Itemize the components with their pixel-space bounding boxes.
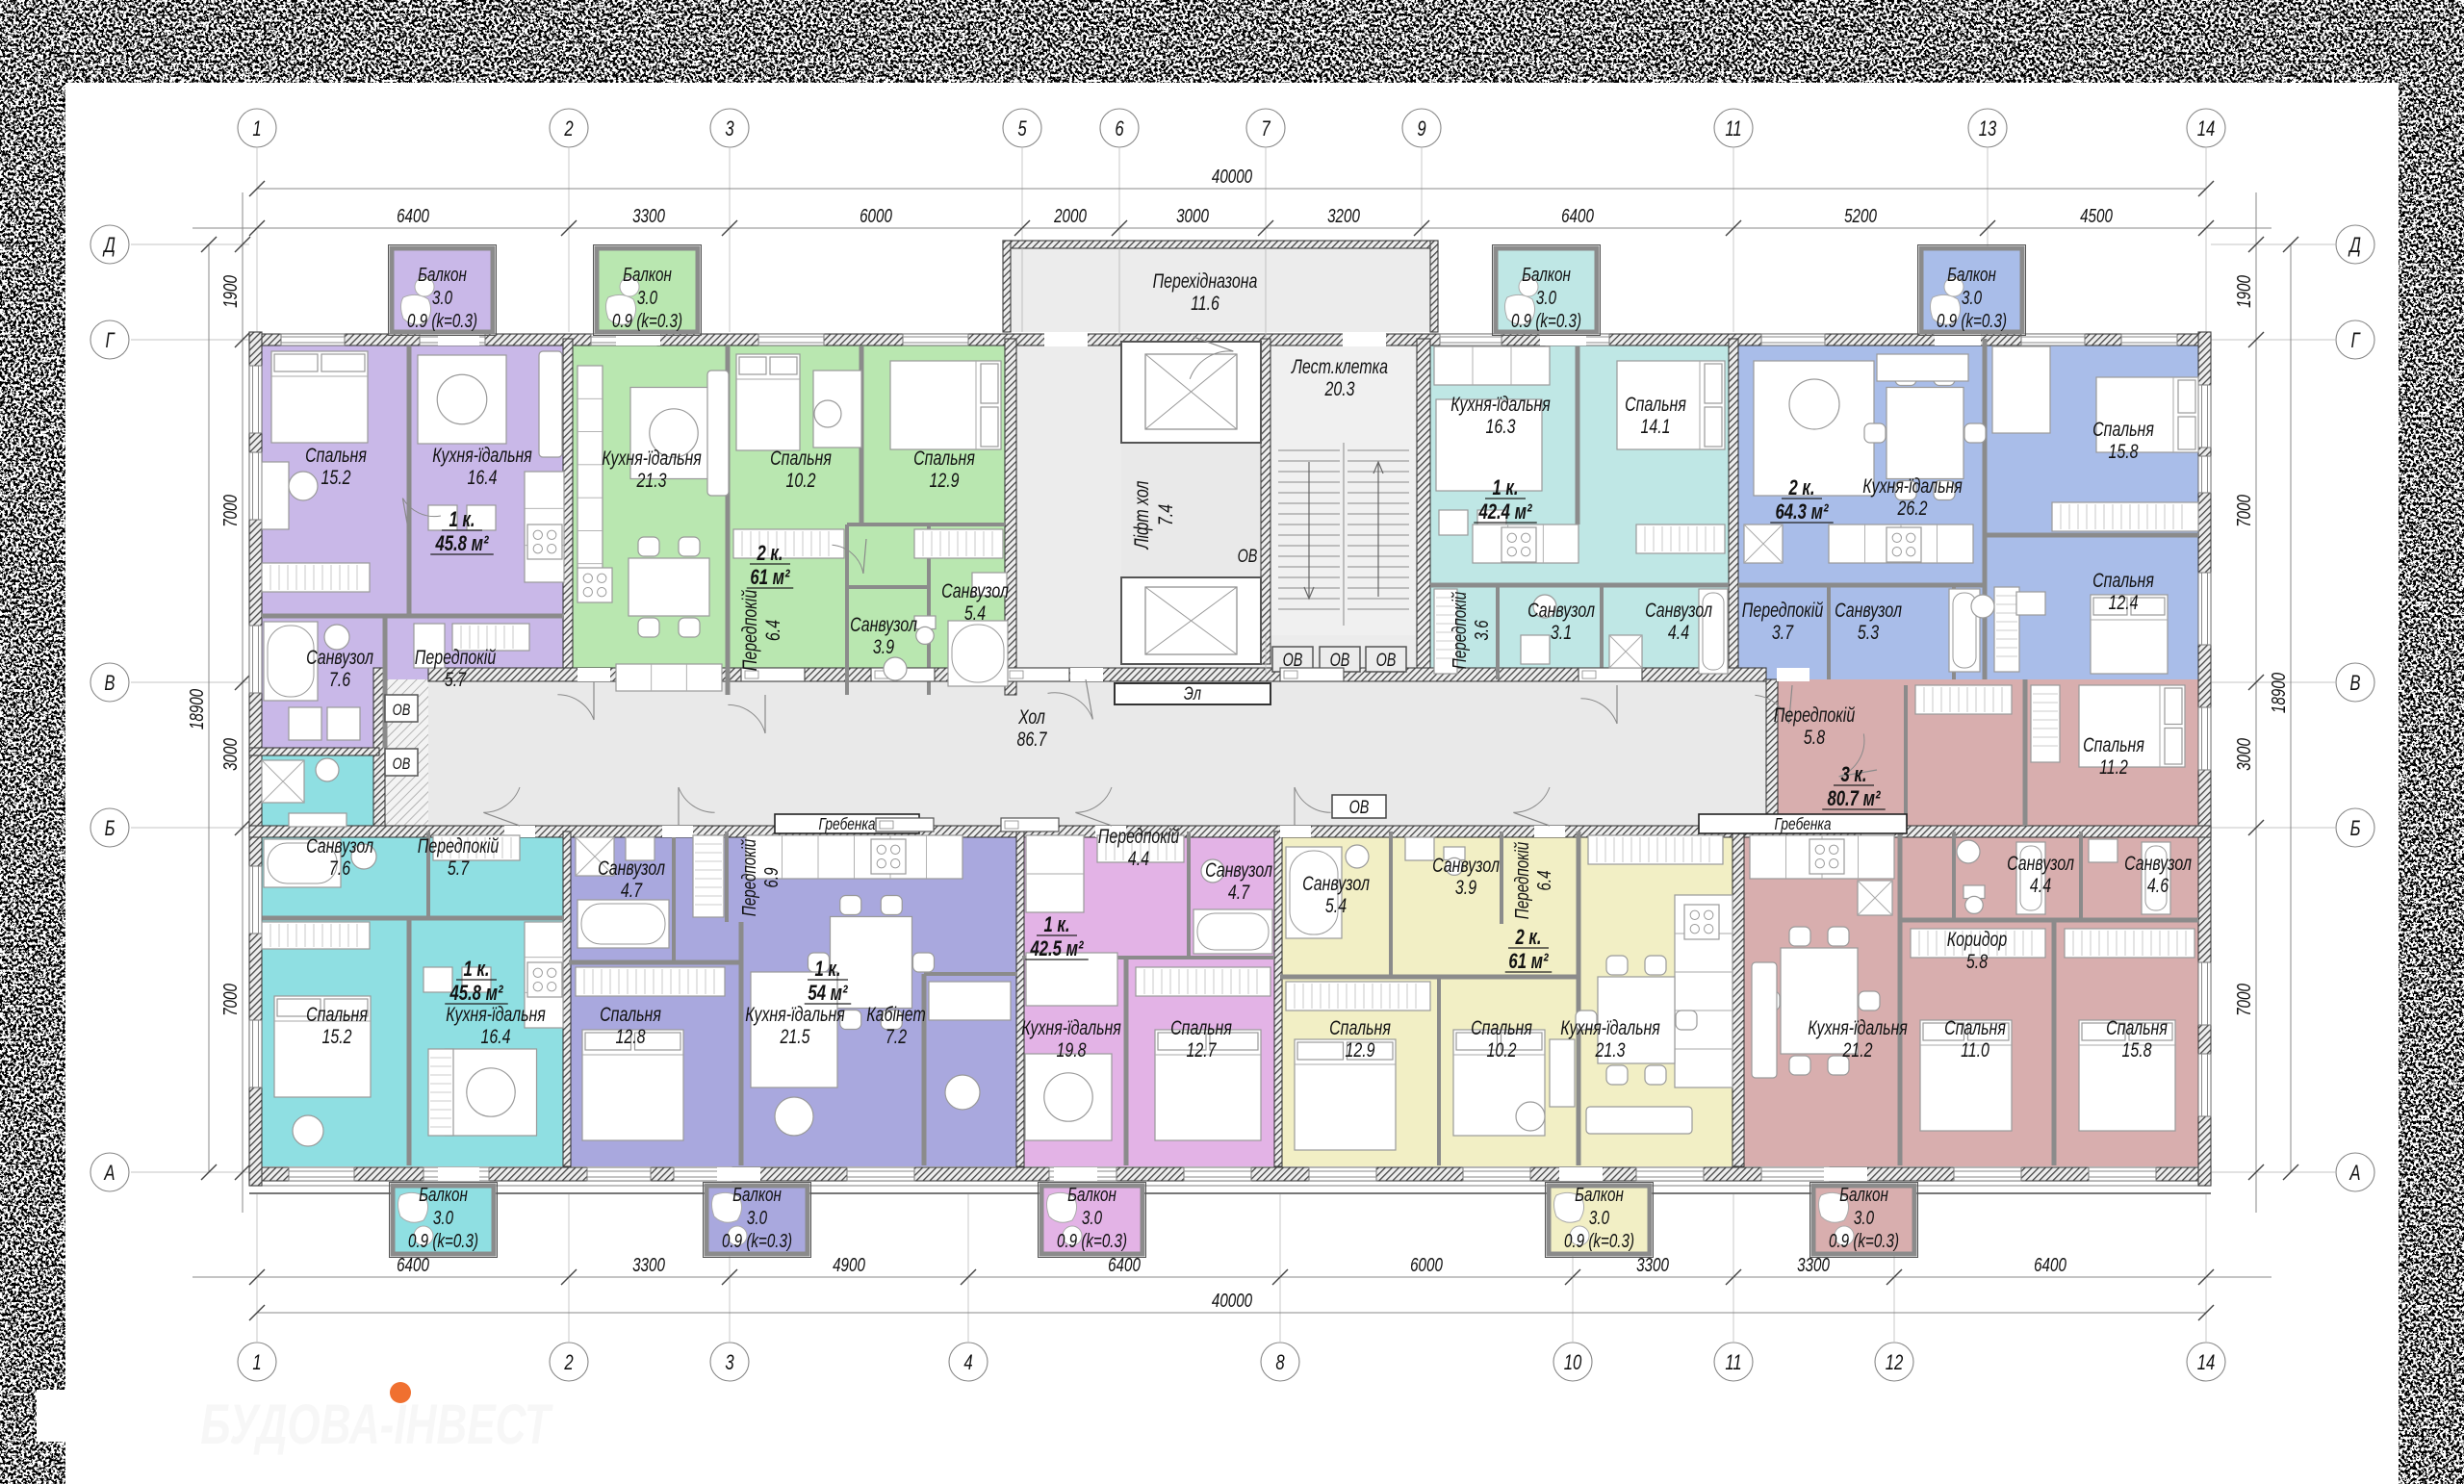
- svg-text:3: 3: [725, 117, 733, 141]
- svg-text:4.7: 4.7: [621, 879, 643, 902]
- svg-text:12.7: 12.7: [1186, 1038, 1217, 1062]
- svg-text:Б: Б: [105, 817, 115, 841]
- svg-text:5.4: 5.4: [1325, 894, 1347, 917]
- svg-text:0.9 (k=0.3): 0.9 (k=0.3): [1057, 1230, 1127, 1252]
- svg-text:1900: 1900: [219, 275, 242, 308]
- svg-text:3: 3: [725, 1351, 733, 1375]
- svg-text:Балкон: Балкон: [418, 264, 467, 286]
- svg-text:18900: 18900: [186, 689, 208, 729]
- svg-text:5.3: 5.3: [1858, 621, 1880, 644]
- svg-text:3000: 3000: [2233, 738, 2255, 771]
- svg-text:5.4: 5.4: [964, 601, 986, 625]
- svg-text:Санвузол: Санвузол: [2007, 852, 2074, 875]
- svg-text:Балкон: Балкон: [1947, 264, 1996, 286]
- svg-text:11.2: 11.2: [2099, 755, 2128, 779]
- svg-text:3.7: 3.7: [1772, 621, 1794, 644]
- svg-text:Санвузол: Санвузол: [2124, 852, 2192, 875]
- svg-text:1 к.: 1 к.: [449, 508, 475, 532]
- svg-text:4.4: 4.4: [1668, 621, 1689, 644]
- svg-text:1 к.: 1 к.: [814, 958, 840, 982]
- svg-text:Г: Г: [105, 329, 115, 353]
- svg-text:7.2: 7.2: [885, 1025, 908, 1048]
- svg-text:19.8: 19.8: [1056, 1038, 1087, 1062]
- svg-text:Д: Д: [2348, 234, 2361, 258]
- svg-text:18900: 18900: [2268, 673, 2290, 713]
- svg-text:Спальня: Спальня: [2092, 569, 2154, 592]
- svg-text:Спальня: Спальня: [1471, 1016, 1532, 1039]
- svg-text:3.0: 3.0: [1536, 287, 1556, 309]
- svg-text:Балкон: Балкон: [732, 1184, 782, 1206]
- svg-text:Спальня: Спальня: [1329, 1016, 1391, 1039]
- svg-text:16.4: 16.4: [467, 466, 497, 489]
- svg-text:4.6: 4.6: [2147, 874, 2169, 897]
- svg-text:5.8: 5.8: [1804, 726, 1826, 749]
- svg-text:11: 11: [1725, 1351, 1741, 1375]
- svg-text:6.4: 6.4: [1533, 870, 1555, 890]
- svg-text:86.7: 86.7: [1016, 728, 1047, 751]
- svg-text:15.8: 15.8: [2108, 440, 2139, 463]
- svg-text:Спальня: Спальня: [305, 444, 367, 467]
- svg-text:12.4: 12.4: [2108, 591, 2138, 614]
- svg-text:13: 13: [1979, 117, 1997, 141]
- svg-text:Передпокій: Передпокій: [738, 839, 760, 916]
- svg-text:15.8: 15.8: [2121, 1038, 2152, 1062]
- svg-text:Санвузол: Санвузол: [850, 613, 917, 636]
- svg-text:Санвузол: Санвузол: [1205, 858, 1272, 882]
- svg-text:Б: Б: [2350, 817, 2361, 841]
- svg-text:Передпокій: Передпокій: [1742, 599, 1823, 622]
- svg-text:7.6: 7.6: [329, 857, 351, 880]
- svg-text:ОВ: ОВ: [1376, 650, 1397, 670]
- svg-text:Балкон: Балкон: [1839, 1184, 1888, 1206]
- svg-text:12.9: 12.9: [929, 469, 959, 492]
- svg-text:Санвузол: Санвузол: [1835, 599, 1902, 622]
- svg-text:16.3: 16.3: [1485, 415, 1516, 438]
- svg-text:42.5 м²: 42.5 м²: [1030, 937, 1084, 961]
- svg-text:0.9 (k=0.3): 0.9 (k=0.3): [1937, 310, 2007, 332]
- svg-text:Хол: Хол: [1017, 705, 1045, 729]
- svg-text:Кухня-їдальня: Кухня-їдальня: [1560, 1016, 1660, 1039]
- svg-text:11: 11: [1725, 117, 1741, 141]
- svg-text:3300: 3300: [632, 205, 665, 227]
- svg-text:Коридор: Коридор: [1947, 928, 2008, 951]
- svg-text:ОВ: ОВ: [1238, 546, 1258, 566]
- svg-text:Кухня-їдальня: Кухня-їдальня: [602, 447, 702, 470]
- svg-text:16.4: 16.4: [480, 1025, 510, 1048]
- svg-text:80.7 м²: 80.7 м²: [1827, 787, 1880, 811]
- svg-text:8: 8: [1275, 1351, 1284, 1375]
- svg-text:6000: 6000: [860, 205, 892, 227]
- svg-text:Санвузол: Санвузол: [1302, 872, 1370, 895]
- svg-text:7.6: 7.6: [329, 668, 351, 691]
- svg-text:3.0: 3.0: [1854, 1207, 1874, 1229]
- svg-text:Ліфт хол: Ліфт хол: [1130, 480, 1153, 550]
- svg-text:4500: 4500: [2080, 205, 2113, 227]
- svg-text:Спальня: Спальня: [913, 447, 975, 470]
- svg-text:Балкон: Балкон: [1067, 1184, 1116, 1206]
- svg-text:1900: 1900: [2233, 275, 2255, 308]
- svg-text:ОВ: ОВ: [1330, 650, 1350, 670]
- svg-text:Передпокій: Передпокій: [415, 646, 496, 669]
- svg-text:5.7: 5.7: [445, 668, 467, 691]
- svg-text:6.4: 6.4: [761, 620, 784, 641]
- svg-text:2 к.: 2 к.: [757, 542, 783, 566]
- svg-text:Гребенка: Гребенка: [819, 815, 876, 833]
- svg-text:Спальня: Спальня: [1944, 1016, 2006, 1039]
- svg-text:Кухня-їдальня: Кухня-їдальня: [1862, 474, 1963, 498]
- svg-text:3.9: 3.9: [1455, 876, 1476, 899]
- svg-text:Балкон: Балкон: [1575, 1184, 1624, 1206]
- svg-text:В: В: [2349, 672, 2360, 696]
- svg-text:Передпокій: Передпокій: [1774, 704, 1855, 727]
- svg-text:12.8: 12.8: [615, 1025, 646, 1048]
- svg-text:6400: 6400: [397, 205, 429, 227]
- svg-text:3.0: 3.0: [1962, 287, 1982, 309]
- svg-text:Передпокій: Передпокій: [1098, 825, 1179, 848]
- svg-text:Спальня: Спальня: [770, 447, 832, 470]
- svg-text:Спальня: Спальня: [600, 1003, 661, 1026]
- svg-text:6400: 6400: [2034, 1254, 2066, 1276]
- svg-text:Кухня-їдальня: Кухня-їдальня: [745, 1003, 845, 1026]
- svg-text:14: 14: [2197, 1351, 2216, 1375]
- svg-text:В: В: [104, 672, 115, 696]
- svg-text:Передпокій: Передпокій: [418, 834, 499, 857]
- svg-text:5.8: 5.8: [1966, 950, 1989, 973]
- svg-text:Кухня-їдальня: Кухня-їдальня: [1450, 393, 1551, 416]
- svg-text:Д: Д: [102, 234, 115, 258]
- svg-text:3.6: 3.6: [1471, 620, 1493, 640]
- svg-text:Балкон: Балкон: [419, 1184, 468, 1206]
- svg-text:Г: Г: [2350, 329, 2360, 353]
- svg-text:9: 9: [1417, 117, 1425, 141]
- svg-text:45.8 м²: 45.8 м²: [435, 532, 489, 556]
- svg-text:1: 1: [252, 117, 261, 141]
- svg-text:3.0: 3.0: [1589, 1207, 1609, 1229]
- svg-text:40000: 40000: [1212, 166, 1252, 188]
- svg-text:ОВ: ОВ: [1349, 797, 1370, 817]
- svg-text:6400: 6400: [1561, 205, 1594, 227]
- svg-text:3000: 3000: [219, 738, 242, 771]
- svg-text:Санвузол: Санвузол: [306, 834, 373, 857]
- svg-text:5200: 5200: [1844, 205, 1877, 227]
- svg-text:4.4: 4.4: [2030, 874, 2051, 897]
- svg-text:Спальня: Спальня: [1170, 1016, 1232, 1039]
- svg-text:1: 1: [252, 1351, 261, 1375]
- svg-text:21.3: 21.3: [636, 469, 667, 492]
- svg-text:БУДОВА-ІНВЕСТ: БУДОВА-ІНВЕСТ: [200, 1393, 553, 1455]
- svg-text:7000: 7000: [2233, 984, 2255, 1016]
- svg-text:А: А: [2349, 1162, 2361, 1186]
- svg-text:10.2: 10.2: [1486, 1038, 1517, 1062]
- svg-text:26.2: 26.2: [1897, 497, 1928, 520]
- svg-text:Передпокій: Передпокій: [738, 590, 761, 671]
- svg-text:5: 5: [1017, 117, 1026, 141]
- svg-text:21.2: 21.2: [1842, 1038, 1873, 1062]
- svg-text:21.5: 21.5: [780, 1025, 810, 1048]
- svg-text:3.0: 3.0: [432, 287, 452, 309]
- svg-text:11.0: 11.0: [1961, 1038, 1989, 1062]
- svg-text:Эл: Эл: [1184, 683, 1202, 704]
- svg-text:Санвузол: Санвузол: [1527, 599, 1595, 622]
- svg-text:14: 14: [2197, 117, 2216, 141]
- svg-text:Спальня: Спальня: [306, 1003, 368, 1026]
- svg-text:Санвузол: Санвузол: [941, 579, 1009, 602]
- svg-text:42.4 м²: 42.4 м²: [1478, 500, 1532, 525]
- svg-text:Спальня: Спальня: [2092, 418, 2154, 441]
- svg-text:3.9: 3.9: [873, 635, 894, 658]
- svg-text:0.9 (k=0.3): 0.9 (k=0.3): [1564, 1230, 1634, 1252]
- svg-text:0.9 (k=0.3): 0.9 (k=0.3): [612, 310, 682, 332]
- svg-text:3.0: 3.0: [637, 287, 657, 309]
- svg-text:0.9 (k=0.3): 0.9 (k=0.3): [408, 1230, 478, 1252]
- svg-text:1 к.: 1 к.: [1492, 476, 1518, 500]
- svg-text:Санвузол: Санвузол: [1432, 854, 1500, 877]
- svg-text:7000: 7000: [219, 984, 242, 1016]
- svg-text:3.0: 3.0: [433, 1207, 453, 1229]
- svg-text:15.2: 15.2: [321, 1025, 352, 1048]
- svg-text:7000: 7000: [219, 495, 242, 527]
- svg-text:Балкон: Балкон: [1522, 264, 1571, 286]
- svg-text:ОВ: ОВ: [1283, 650, 1303, 670]
- svg-text:Кухня-їдальня: Кухня-їдальня: [446, 1003, 546, 1026]
- svg-text:Лест.клетка: Лест.клетка: [1291, 355, 1388, 378]
- svg-text:Передпокій: Передпокій: [1511, 842, 1533, 919]
- svg-text:61 м²: 61 м²: [750, 566, 790, 590]
- svg-text:Санвузол: Санвузол: [598, 857, 665, 880]
- svg-text:3300: 3300: [632, 1254, 665, 1276]
- svg-text:Кабінет: Кабінет: [866, 1003, 926, 1026]
- svg-text:Перехідназона: Перехідназона: [1153, 269, 1258, 293]
- svg-text:3.1: 3.1: [1551, 621, 1572, 644]
- svg-text:Санвузол: Санвузол: [1645, 599, 1712, 622]
- svg-text:Спальня: Спальня: [2083, 733, 2144, 756]
- svg-text:1 к.: 1 к.: [1043, 913, 1069, 937]
- svg-text:64.3 м²: 64.3 м²: [1775, 500, 1828, 525]
- svg-text:61 м²: 61 м²: [1508, 950, 1549, 974]
- svg-text:Санвузол: Санвузол: [306, 646, 373, 669]
- svg-text:3 к.: 3 к.: [1840, 763, 1866, 787]
- svg-text:6000: 6000: [1410, 1254, 1443, 1276]
- svg-text:10: 10: [1564, 1351, 1582, 1375]
- svg-text:2 к.: 2 к.: [1788, 476, 1815, 500]
- svg-text:15.2: 15.2: [321, 466, 351, 489]
- svg-text:6: 6: [1115, 117, 1123, 141]
- svg-text:4.7: 4.7: [1228, 881, 1250, 904]
- svg-text:4: 4: [963, 1351, 972, 1375]
- svg-text:7: 7: [1261, 117, 1270, 141]
- svg-text:20.3: 20.3: [1324, 377, 1355, 400]
- svg-text:7.4: 7.4: [1154, 504, 1177, 525]
- svg-text:4.4: 4.4: [1128, 847, 1149, 870]
- svg-text:2000: 2000: [1053, 205, 1087, 227]
- svg-text:Спальня: Спальня: [2106, 1016, 2168, 1039]
- svg-text:14.1: 14.1: [1640, 415, 1670, 438]
- svg-text:2: 2: [563, 117, 573, 141]
- svg-text:12.9: 12.9: [1345, 1038, 1374, 1062]
- svg-text:10.2: 10.2: [785, 469, 816, 492]
- svg-text:3000: 3000: [1176, 205, 1209, 227]
- svg-text:3.0: 3.0: [747, 1207, 767, 1229]
- svg-text:ОВ: ОВ: [393, 701, 411, 719]
- svg-text:5.7: 5.7: [448, 857, 470, 880]
- svg-text:7000: 7000: [2233, 495, 2255, 527]
- svg-text:Кухня-їдальня: Кухня-їдальня: [432, 444, 532, 467]
- svg-text:0.9 (k=0.3): 0.9 (k=0.3): [407, 310, 477, 332]
- svg-text:ОВ: ОВ: [393, 755, 411, 773]
- svg-text:2: 2: [563, 1351, 573, 1375]
- svg-text:0.9 (k=0.3): 0.9 (k=0.3): [1511, 310, 1581, 332]
- svg-text:Балкон: Балкон: [623, 264, 672, 286]
- svg-text:11.6: 11.6: [1191, 292, 1219, 315]
- svg-text:6.9: 6.9: [760, 867, 783, 887]
- svg-text:Кухня-їдальня: Кухня-їдальня: [1021, 1016, 1121, 1039]
- svg-text:0.9 (k=0.3): 0.9 (k=0.3): [1829, 1230, 1899, 1252]
- svg-text:1 к.: 1 к.: [463, 958, 489, 982]
- svg-text:3.0: 3.0: [1082, 1207, 1102, 1229]
- svg-text:Гребенка: Гребенка: [1775, 815, 1832, 833]
- svg-text:Передпокій: Передпокій: [1449, 592, 1471, 669]
- svg-text:Кухня-їдальня: Кухня-їдальня: [1808, 1016, 1908, 1039]
- svg-text:2 к.: 2 к.: [1515, 926, 1542, 950]
- svg-text:Спальня: Спальня: [1625, 393, 1686, 416]
- svg-text:21.3: 21.3: [1595, 1038, 1626, 1062]
- svg-text:40000: 40000: [1212, 1290, 1252, 1312]
- svg-text:0.9 (k=0.3): 0.9 (k=0.3): [722, 1230, 792, 1252]
- svg-text:А: А: [104, 1162, 115, 1186]
- svg-text:4900: 4900: [833, 1254, 865, 1276]
- svg-text:3200: 3200: [1327, 205, 1360, 227]
- svg-text:12: 12: [1886, 1351, 1904, 1375]
